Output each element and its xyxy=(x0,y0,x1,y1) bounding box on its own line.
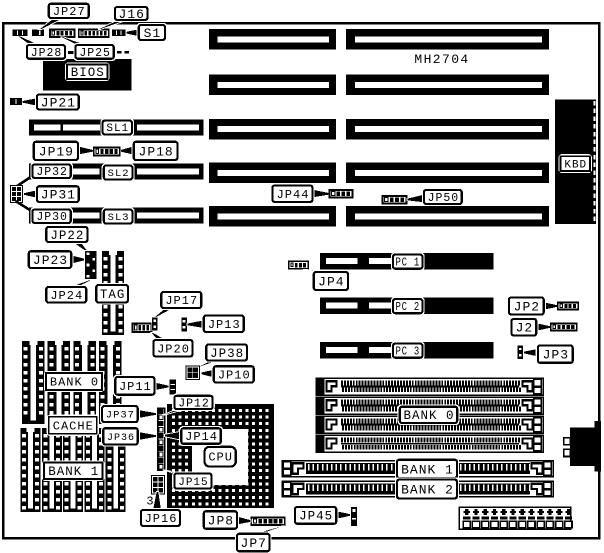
svg-text:JP30: JP30 xyxy=(36,211,68,224)
svg-text:TAG: TAG xyxy=(100,288,126,302)
svg-text:PC 1: PC 1 xyxy=(396,256,421,270)
svg-text:JP17: JP17 xyxy=(165,294,198,308)
svg-text:BANK 0: BANK 0 xyxy=(403,409,454,423)
svg-text:JP37: JP37 xyxy=(106,410,135,422)
svg-text:MH2704: MH2704 xyxy=(414,52,469,67)
svg-text:BANK 0: BANK 0 xyxy=(50,376,99,390)
svg-text:JP23: JP23 xyxy=(33,253,68,268)
svg-text:JP4: JP4 xyxy=(318,274,344,289)
svg-text:BIOS: BIOS xyxy=(71,66,105,80)
svg-text:JP11: JP11 xyxy=(119,380,152,394)
svg-text:J16: J16 xyxy=(119,7,145,22)
svg-text:SL2: SL2 xyxy=(108,168,130,180)
svg-text:JP12: JP12 xyxy=(178,397,210,410)
svg-text:JP24: JP24 xyxy=(50,289,83,303)
svg-text:JP22: JP22 xyxy=(50,229,84,243)
svg-text:JP10: JP10 xyxy=(218,368,251,382)
svg-text:JP27: JP27 xyxy=(53,5,86,19)
svg-text:SL1: SL1 xyxy=(106,123,129,135)
svg-text:JP28: JP28 xyxy=(31,47,63,60)
svg-text:JP13: JP13 xyxy=(208,318,241,332)
svg-text:JP19: JP19 xyxy=(39,144,74,159)
svg-text:JP15: JP15 xyxy=(178,477,208,489)
svg-text:S1: S1 xyxy=(144,26,162,41)
svg-text:JP25: JP25 xyxy=(79,47,111,60)
svg-text:JP44: JP44 xyxy=(277,188,310,202)
svg-text:JP21: JP21 xyxy=(41,95,76,110)
svg-text:BANK 1: BANK 1 xyxy=(401,462,454,477)
svg-text:SL3: SL3 xyxy=(108,212,130,224)
svg-text:KBD: KBD xyxy=(564,159,587,171)
svg-text:JP32: JP32 xyxy=(36,166,68,179)
svg-text:JP7: JP7 xyxy=(241,536,267,551)
svg-text:CACHE: CACHE xyxy=(53,419,94,433)
svg-text:BANK 1: BANK 1 xyxy=(48,465,99,479)
svg-text:JP36: JP36 xyxy=(107,433,135,444)
svg-text:JP14: JP14 xyxy=(185,430,218,444)
svg-text:CPU: CPU xyxy=(208,451,233,465)
svg-text:PC 2: PC 2 xyxy=(396,300,421,314)
svg-text:BANK 2: BANK 2 xyxy=(401,482,454,497)
svg-text:JP2: JP2 xyxy=(514,299,540,314)
svg-text:JP20: JP20 xyxy=(157,342,190,356)
svg-text:JP18: JP18 xyxy=(139,144,174,159)
svg-text:JP16: JP16 xyxy=(145,512,178,526)
svg-text:JP3: JP3 xyxy=(543,348,569,363)
svg-text:JP45: JP45 xyxy=(299,510,333,524)
svg-text:PC 3: PC 3 xyxy=(396,345,421,359)
svg-text:J2: J2 xyxy=(516,321,534,336)
svg-text:JP50: JP50 xyxy=(428,192,460,205)
svg-text:JP38: JP38 xyxy=(210,347,244,361)
svg-text:JP31: JP31 xyxy=(41,188,76,203)
svg-text:JP8: JP8 xyxy=(208,513,234,528)
